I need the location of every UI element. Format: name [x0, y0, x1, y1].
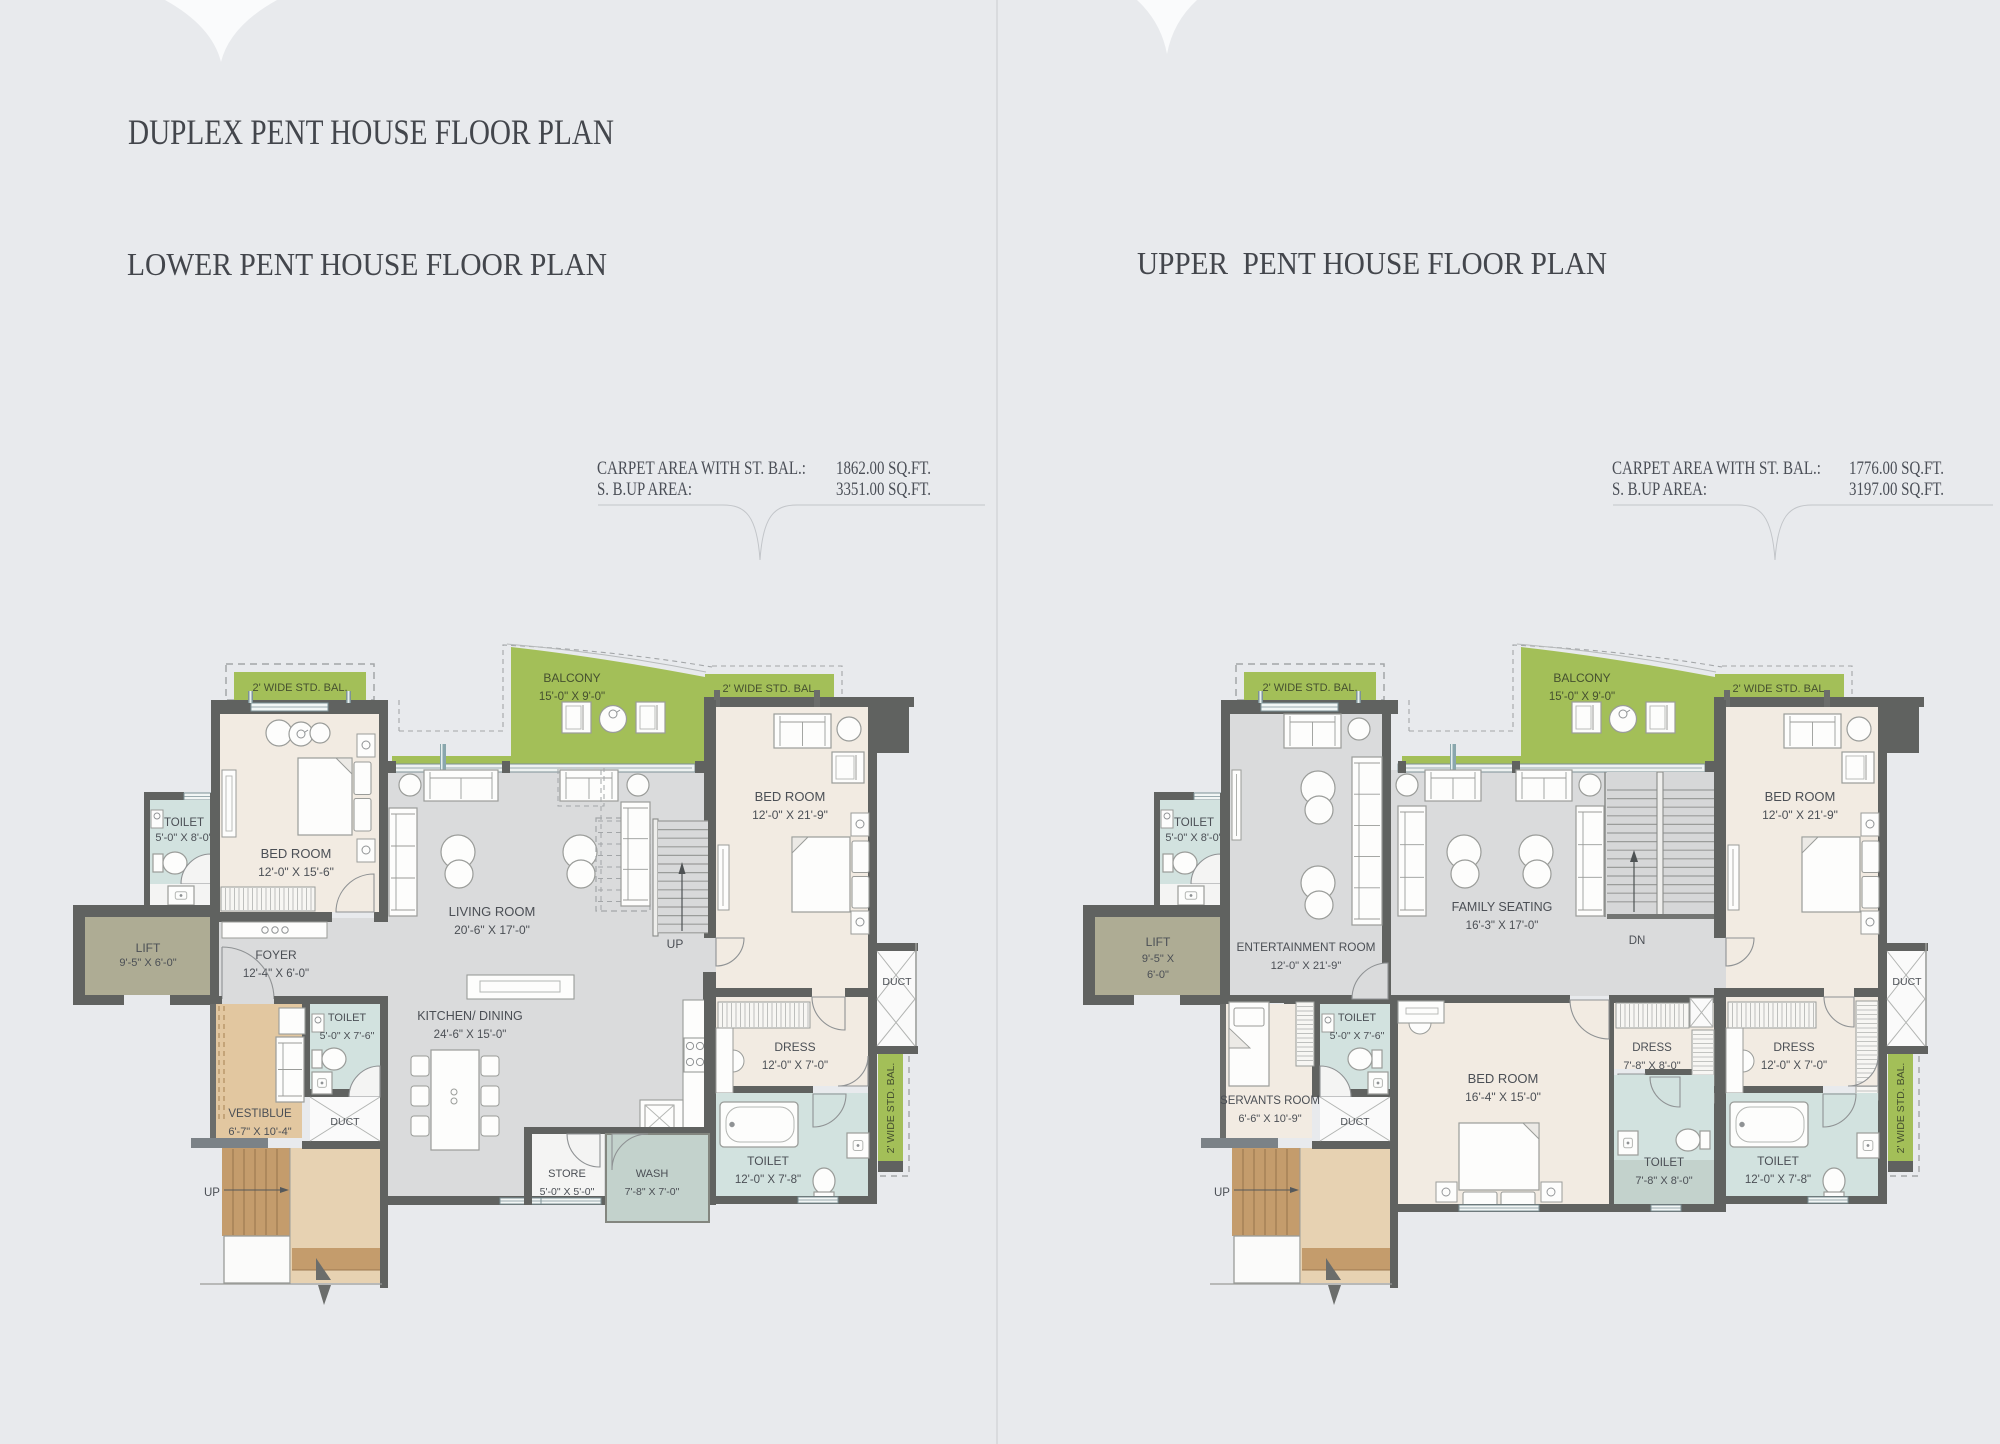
svg-text:BED ROOM: BED ROOM: [1468, 1071, 1539, 1086]
svg-text:S. B.UP AREA:: S. B.UP AREA:: [1612, 479, 1707, 500]
svg-text:TOILET: TOILET: [1338, 1012, 1377, 1024]
svg-text:24'-6" X 15'-0": 24'-6" X 15'-0": [434, 1029, 507, 1041]
svg-text:S. B.UP AREA:: S. B.UP AREA:: [597, 479, 692, 500]
svg-text:DRESS: DRESS: [774, 1040, 815, 1054]
svg-text:12'-0" X 15'-6": 12'-0" X 15'-6": [258, 865, 334, 879]
svg-text:DUPLEX PENT HOUSE FLOOR PLAN: DUPLEX PENT HOUSE FLOOR PLAN: [128, 112, 614, 152]
svg-text:BED ROOM: BED ROOM: [261, 846, 332, 861]
svg-text:6'-6" X 10'-9": 6'-6" X 10'-9": [1238, 1113, 1301, 1125]
svg-text:7'-8" X 8'-0": 7'-8" X 8'-0": [1623, 1060, 1680, 1072]
svg-text:SERVANTS ROOM: SERVANTS ROOM: [1220, 1095, 1320, 1107]
svg-text:7'-8" X 7'-0": 7'-8" X 7'-0": [625, 1186, 680, 1198]
svg-text:6'-7" X 10'-4": 6'-7" X 10'-4": [228, 1126, 291, 1138]
svg-text:2' WIDE STD. BAL.: 2' WIDE STD. BAL.: [1262, 682, 1357, 694]
svg-text:TOILET: TOILET: [1757, 1154, 1799, 1168]
svg-text:FAMILY SEATING: FAMILY SEATING: [1452, 900, 1553, 914]
svg-text:5'-0" X 7'-6": 5'-0" X 7'-6": [320, 1030, 375, 1042]
svg-text:16'-3" X 17'-0": 16'-3" X 17'-0": [1466, 920, 1539, 932]
svg-text:UPPER PENT HOUSE FLOOR PLAN: UPPER PENT HOUSE FLOOR PLAN: [1137, 245, 1607, 281]
svg-text:DUCT: DUCT: [1340, 1116, 1370, 1128]
svg-text:2' WIDE STD. BAL.: 2' WIDE STD. BAL.: [885, 1063, 897, 1154]
svg-text:5'-0" X 8'-0": 5'-0" X 8'-0": [1165, 832, 1222, 844]
svg-text:BALCONY: BALCONY: [543, 671, 600, 685]
svg-text:12'-0" X 7'-0": 12'-0" X 7'-0": [762, 1060, 828, 1072]
svg-text:TOILET: TOILET: [164, 817, 204, 829]
svg-text:TOILET: TOILET: [747, 1154, 789, 1168]
svg-text:7'-8" X 8'-0": 7'-8" X 8'-0": [1635, 1175, 1692, 1187]
svg-text:DUCT: DUCT: [882, 976, 912, 988]
svg-text:ENTERTAINMENT ROOM: ENTERTAINMENT ROOM: [1237, 940, 1376, 954]
svg-text:BED ROOM: BED ROOM: [755, 789, 826, 804]
svg-text:16'-4" X 15'-0": 16'-4" X 15'-0": [1465, 1090, 1541, 1104]
svg-text:3197.00 SQ.FT.: 3197.00 SQ.FT.: [1849, 479, 1944, 500]
svg-text:5'-0" X 7'-6": 5'-0" X 7'-6": [1330, 1030, 1385, 1042]
svg-text:9'-5" X 6'-0": 9'-5" X 6'-0": [119, 957, 176, 969]
svg-text:2' WIDE STD. BAL.: 2' WIDE STD. BAL.: [722, 683, 817, 695]
svg-text:WASH: WASH: [636, 1168, 669, 1180]
svg-text:DUCT: DUCT: [1892, 976, 1922, 988]
svg-text:12'-0" X 7'-0": 12'-0" X 7'-0": [1761, 1060, 1827, 1072]
svg-text:5'-0" X 8'-0": 5'-0" X 8'-0": [155, 832, 212, 844]
svg-text:2' WIDE STD. BAL.: 2' WIDE STD. BAL.: [1732, 683, 1827, 695]
svg-text:9'-5" X: 9'-5" X: [1142, 953, 1175, 965]
svg-text:CARPET AREA WITH ST. BAL.:: CARPET AREA WITH ST. BAL.:: [1612, 458, 1821, 479]
svg-text:VESTIBLUE: VESTIBLUE: [228, 1108, 292, 1120]
svg-text:DRESS: DRESS: [1773, 1040, 1814, 1054]
svg-text:TOILET: TOILET: [1174, 817, 1214, 829]
svg-text:TOILET: TOILET: [328, 1012, 367, 1024]
svg-text:UP: UP: [204, 1187, 220, 1199]
svg-text:DN: DN: [1629, 935, 1646, 947]
svg-text:DRESS: DRESS: [1632, 1042, 1672, 1054]
svg-text:5'-0" X 5'-0": 5'-0" X 5'-0": [540, 1186, 595, 1198]
svg-text:FOYER: FOYER: [255, 948, 297, 962]
svg-text:12'-0" X 21'-9": 12'-0" X 21'-9": [752, 808, 828, 822]
svg-text:UP: UP: [1214, 1187, 1230, 1199]
svg-text:CARPET AREA WITH ST. BAL.:: CARPET AREA WITH ST. BAL.:: [597, 458, 806, 479]
svg-text:LIFT: LIFT: [136, 941, 161, 955]
svg-text:20'-6" X 17'-0": 20'-6" X 17'-0": [454, 923, 530, 937]
svg-text:BED ROOM: BED ROOM: [1765, 789, 1836, 804]
svg-text:1862.00 SQ.FT.: 1862.00 SQ.FT.: [836, 458, 931, 479]
svg-text:12'-0" X 7'-8": 12'-0" X 7'-8": [735, 1174, 801, 1186]
svg-text:TOILET: TOILET: [1644, 1157, 1684, 1169]
svg-text:LOWER PENT HOUSE FLOOR PLAN: LOWER PENT HOUSE FLOOR PLAN: [127, 246, 607, 282]
svg-text:15'-0" X 9'-0": 15'-0" X 9'-0": [1549, 691, 1615, 703]
svg-text:KITCHEN/ DINING: KITCHEN/ DINING: [417, 1009, 523, 1023]
svg-text:UP: UP: [667, 937, 684, 951]
svg-text:2' WIDE STD. BAL.: 2' WIDE STD. BAL.: [252, 682, 347, 694]
svg-text:12'-0" X 21'-9": 12'-0" X 21'-9": [1271, 960, 1342, 972]
svg-text:1776.00 SQ.FT.: 1776.00 SQ.FT.: [1849, 458, 1944, 479]
svg-text:LIVING ROOM: LIVING ROOM: [449, 904, 536, 919]
svg-text:3351.00 SQ.FT.: 3351.00 SQ.FT.: [836, 479, 931, 500]
svg-text:BALCONY: BALCONY: [1553, 671, 1610, 685]
svg-text:2' WIDE STD. BAL.: 2' WIDE STD. BAL.: [1895, 1063, 1907, 1154]
svg-text:6'-0": 6'-0": [1147, 969, 1169, 981]
svg-text:12'-4" X 6'-0": 12'-4" X 6'-0": [243, 968, 309, 980]
svg-text:STORE: STORE: [548, 1168, 586, 1180]
svg-text:12'-0" X 7'-8": 12'-0" X 7'-8": [1745, 1174, 1811, 1186]
svg-text:LIFT: LIFT: [1146, 935, 1171, 949]
svg-text:DUCT: DUCT: [330, 1116, 360, 1128]
svg-text:12'-0" X 21'-9": 12'-0" X 21'-9": [1762, 808, 1838, 822]
svg-text:15'-0" X 9'-0": 15'-0" X 9'-0": [539, 691, 605, 703]
